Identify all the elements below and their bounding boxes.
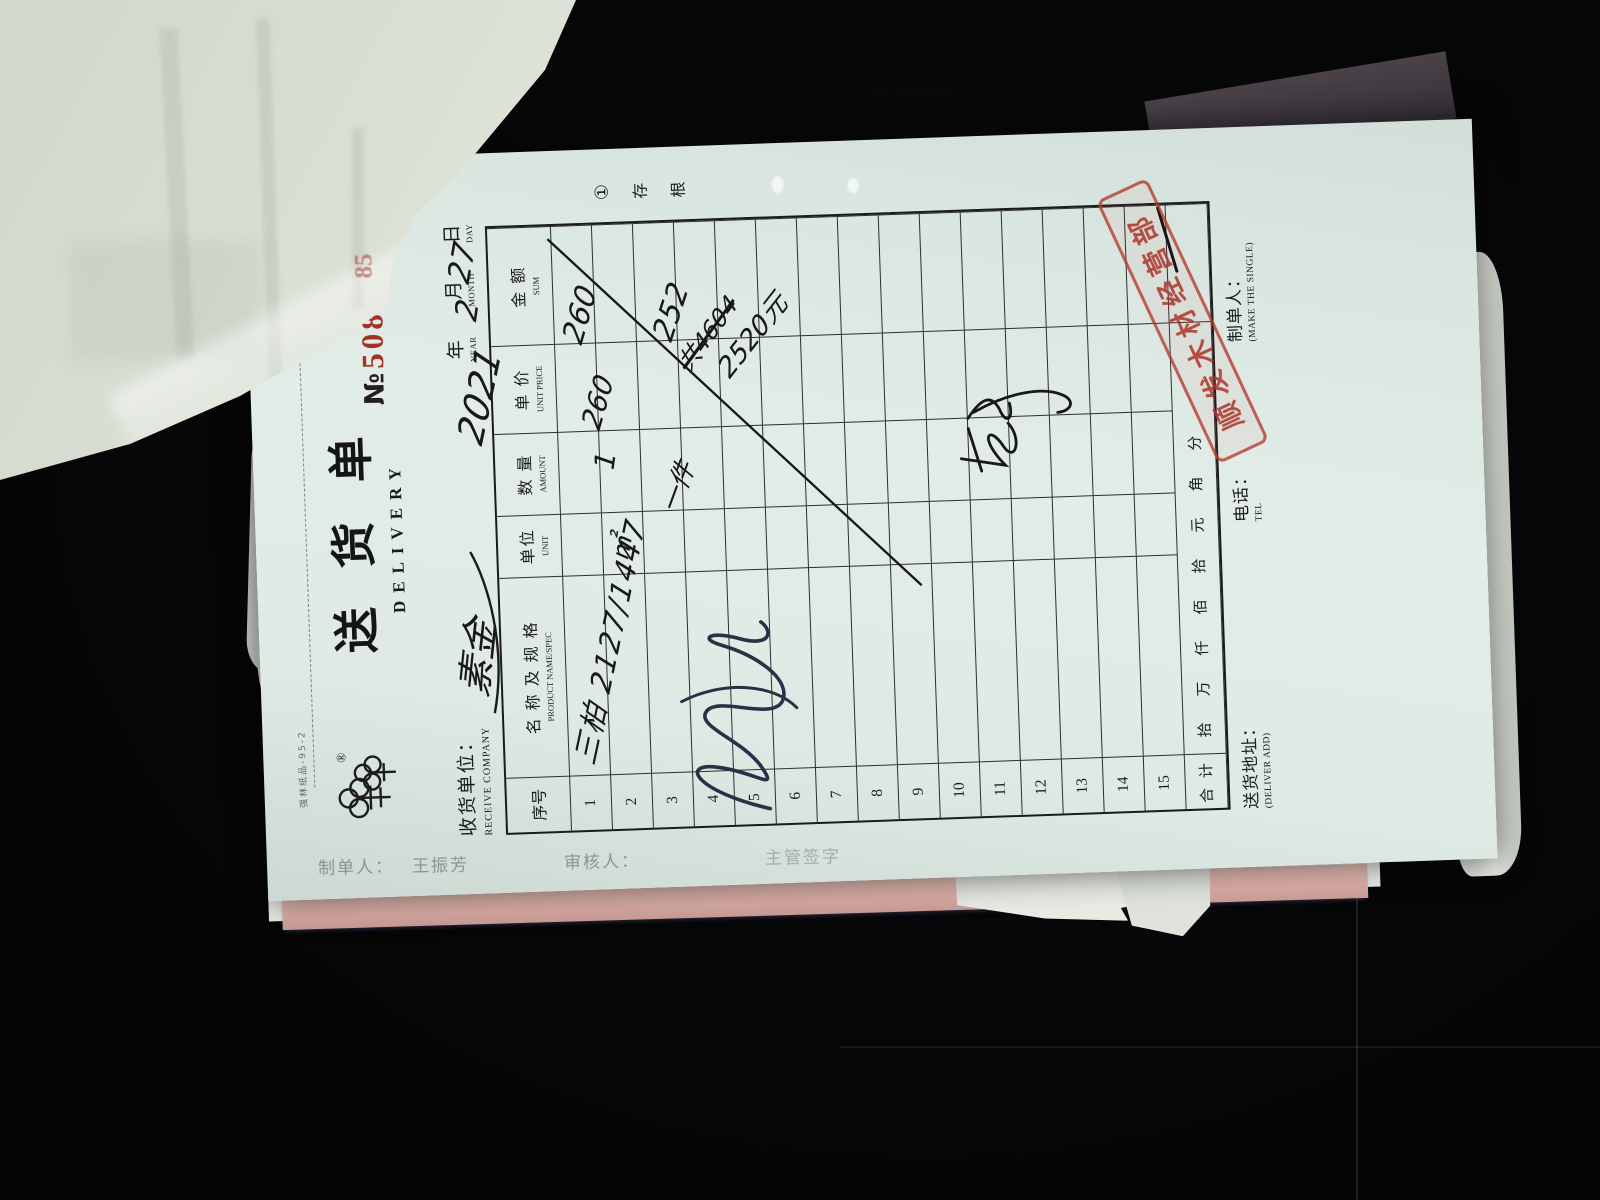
row-number-cell: 1 bbox=[570, 774, 613, 830]
table-cell bbox=[561, 512, 604, 575]
row-number-cell: 7 bbox=[816, 766, 859, 822]
table-cell bbox=[1132, 410, 1176, 493]
table-cell bbox=[1137, 554, 1185, 755]
table-cell bbox=[804, 422, 848, 505]
table-cell bbox=[850, 564, 898, 765]
row-number-cell: 2 bbox=[611, 773, 654, 829]
numero-sign: № bbox=[359, 372, 391, 405]
row-number-cell: 11 bbox=[980, 760, 1023, 816]
column-header-amount: 数 量AMOUNT bbox=[494, 432, 561, 516]
table-cell bbox=[838, 215, 883, 334]
ghost-checker-label: 审核人： bbox=[564, 852, 640, 873]
table-cell bbox=[930, 499, 973, 562]
column-header-sum: 金 额SUM bbox=[487, 226, 555, 346]
table-cell bbox=[797, 216, 842, 335]
column-header-product: 名 称 及 规 格PRODUCT NAME/SPEC bbox=[499, 576, 570, 778]
stub-copy-mark: ① 存 根 bbox=[591, 178, 689, 203]
whiteout-smudge-2 bbox=[847, 178, 859, 193]
table-cell bbox=[924, 330, 968, 419]
table-cell bbox=[961, 210, 1006, 329]
row-number-cell: 6 bbox=[775, 767, 818, 823]
table-cell bbox=[932, 561, 980, 762]
row-number-cell: 9 bbox=[898, 763, 941, 819]
table-cell bbox=[760, 335, 804, 424]
table-cell bbox=[558, 430, 602, 513]
table-cell bbox=[927, 418, 971, 501]
table-cell bbox=[886, 419, 930, 502]
photo-of-delivery-note: 强林纸品-95-2 ® 送 货 单 DELIVERY № 50850 收货单位： bbox=[0, 0, 1600, 1200]
total-row-label: 合 计 bbox=[1185, 753, 1229, 809]
receive-company-field: 收货单位： RECEIVE COMPANY bbox=[450, 727, 495, 837]
table-cell bbox=[971, 498, 1014, 561]
svg-text:®: ® bbox=[333, 752, 348, 763]
table-cell bbox=[1047, 325, 1091, 414]
table-cell bbox=[842, 332, 886, 421]
row-number-cell: 3 bbox=[652, 771, 695, 827]
table-cell bbox=[889, 501, 932, 564]
table-cell bbox=[1094, 494, 1137, 557]
table-cell bbox=[883, 331, 927, 420]
table-cell bbox=[891, 563, 939, 764]
telephone-field: 电话：TEL bbox=[1226, 467, 1265, 522]
table-cell bbox=[801, 334, 845, 423]
showthrough-red-number: 85 bbox=[351, 254, 379, 279]
column-header-unit: 单位UNIT bbox=[497, 514, 563, 578]
table-cell bbox=[920, 212, 965, 331]
deliver-address-field: 送货地址：(DELIVER ADD) bbox=[1235, 718, 1275, 809]
ghost-maker-name: 王振芳 bbox=[412, 856, 469, 876]
row-number-cell: 14 bbox=[1103, 756, 1146, 812]
table-cell bbox=[809, 566, 857, 767]
table-cell bbox=[845, 420, 889, 503]
table-cell bbox=[766, 505, 809, 568]
table-cell bbox=[1096, 556, 1144, 757]
row-number-cell: 12 bbox=[1021, 758, 1064, 814]
maker-field: 制单人：(MAKE THE SINGLE) bbox=[1218, 242, 1258, 343]
background-seam-horizontal bbox=[840, 1046, 1600, 1048]
table-cell bbox=[1043, 207, 1088, 326]
table-cell bbox=[1050, 413, 1094, 496]
circled-one-mark: ① bbox=[591, 181, 613, 204]
table-cell bbox=[725, 507, 768, 570]
table-cell bbox=[599, 429, 643, 512]
row-number-cell: 10 bbox=[939, 761, 982, 817]
table-cell bbox=[684, 508, 727, 571]
column-header-seq: 序号 bbox=[506, 776, 572, 833]
table-cell bbox=[1053, 495, 1096, 558]
table-cell bbox=[1009, 415, 1053, 498]
printer-edge-mark: 强林纸品-95-2 bbox=[294, 730, 310, 808]
table-cell bbox=[968, 416, 1012, 499]
table-cell bbox=[1135, 492, 1178, 555]
whiteout-smudge bbox=[771, 176, 784, 193]
handwriting-receive-company: 素金 bbox=[444, 611, 506, 702]
table-cell bbox=[807, 504, 850, 567]
row-number-cell: 4 bbox=[693, 770, 736, 826]
table-cell bbox=[965, 328, 1009, 417]
table-cell bbox=[848, 502, 891, 565]
ghost-maker-label: 制单人： bbox=[318, 857, 394, 878]
row-number-cell: 15 bbox=[1144, 754, 1187, 810]
table-cell bbox=[763, 423, 807, 506]
row-number-cell: 5 bbox=[734, 768, 777, 824]
row-number-cell: 13 bbox=[1062, 757, 1105, 813]
table-cell bbox=[879, 213, 924, 332]
table-cell bbox=[722, 425, 766, 508]
delivery-form-page: 强林纸品-95-2 ® 送 货 单 DELIVERY № 50850 收货单位： bbox=[242, 119, 1497, 901]
table-cell bbox=[768, 567, 816, 768]
table-cell bbox=[1088, 324, 1132, 413]
table-cell bbox=[1012, 497, 1055, 560]
table-cell bbox=[1055, 557, 1103, 758]
table-cell bbox=[973, 560, 1021, 761]
table-cell bbox=[645, 571, 693, 772]
table-cell bbox=[1091, 412, 1135, 495]
table-cell bbox=[1006, 327, 1050, 416]
double-tree-logo: ® bbox=[331, 746, 411, 827]
ghost-right-fragment: 主管签字 bbox=[765, 847, 841, 868]
table-cell bbox=[1014, 559, 1062, 760]
table-cell bbox=[592, 223, 637, 342]
table-cell bbox=[1002, 209, 1047, 328]
table-cell bbox=[727, 569, 775, 770]
table-cell bbox=[686, 570, 734, 771]
row-number-cell: 8 bbox=[857, 764, 900, 820]
